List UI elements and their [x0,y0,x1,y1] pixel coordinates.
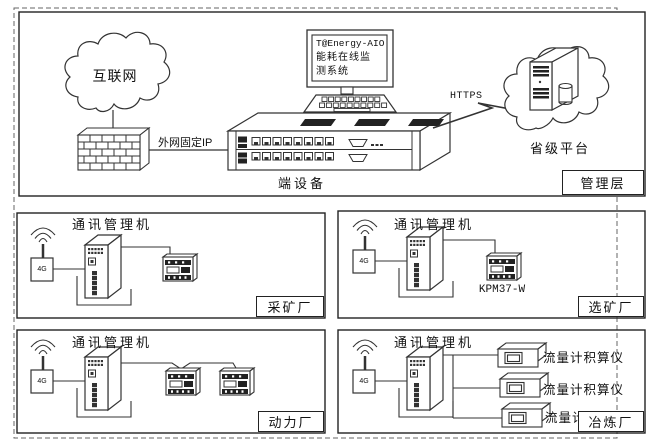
terminal-rack-icon [228,113,450,170]
meter-model-label: KPM37-W [468,283,536,296]
gateway-label: 通讯管理机 [386,216,482,231]
internet-label: 互联网 [90,66,140,86]
provincial-platform-label: 省级平台 [516,138,604,157]
monitor-screen-line2: 能耗在线监 [316,51,371,65]
plant-name-badge: 动力厂 [258,411,324,432]
management-layer-badge: 管理层 [562,170,644,195]
flow-totalizer [500,373,548,397]
energy-meter [166,368,200,395]
4g-module-label: 4G [31,258,53,281]
4g-module-label: 4G [353,250,375,273]
flow-totalizer-label: 流量计积算仪 [543,347,624,366]
meter-link-line [443,240,495,253]
monitor-screen-line3: 测系统 [316,65,349,79]
terminal-device-label: 端设备 [278,173,342,192]
4g-module-label: 4G [31,370,53,393]
monitor-screen-line1: T@Energy-AIO [316,37,384,51]
plant-name-badge: 选矿厂 [578,296,644,317]
firewall-icon [78,128,149,170]
meter-link-line [121,247,170,254]
https-label: HTTPS [450,91,483,102]
flow-totalizer [502,403,550,427]
diagram-canvas: 互联网 外网固定IP 端设备 T@Energy-AIO 能耗在线监 测系统 HT… [0,0,654,441]
energy-meter [487,253,521,280]
gateway-label: 通讯管理机 [64,334,160,349]
gateway-label: 通讯管理机 [386,334,482,349]
energy-meter [163,254,197,281]
energy-meter [220,368,254,395]
plant-name-badge: 冶炼厂 [578,411,644,432]
totalizer-bus-line [443,355,502,418]
flow-totalizer [498,343,546,367]
4g-module-label: 4G [353,370,375,393]
server-cup-icon [559,84,572,105]
gateway-label: 通讯管理机 [64,216,160,231]
plant-name-badge: 采矿厂 [256,296,324,317]
wan-ip-label: 外网固定IP [158,134,230,150]
flow-totalizer-label: 流量计积算仪 [543,379,624,398]
